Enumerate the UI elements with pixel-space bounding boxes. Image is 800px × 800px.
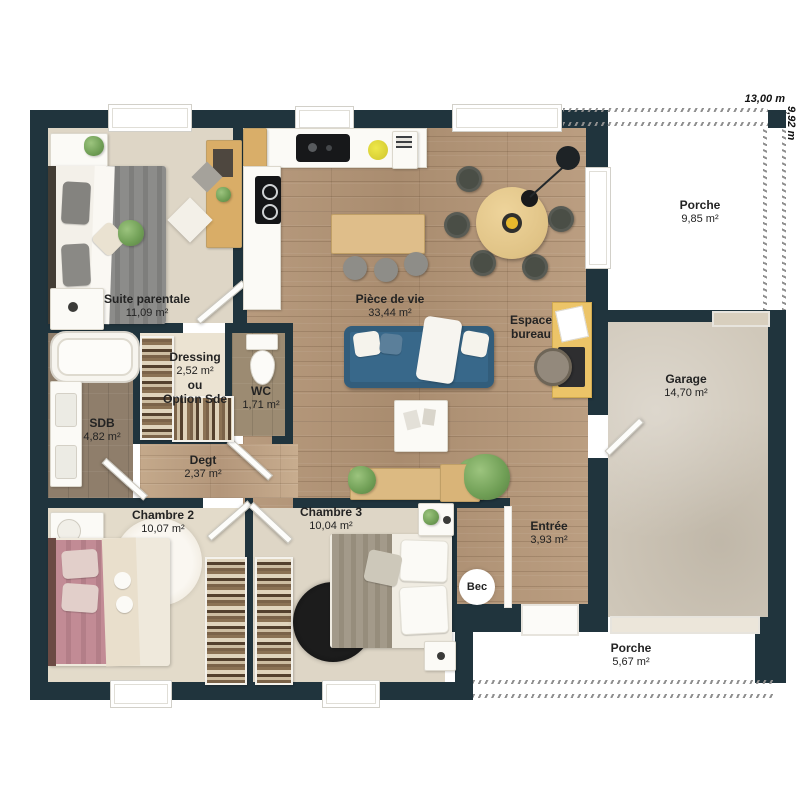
kitchen-drain-icon (326, 145, 332, 151)
label-chambre-2: Chambre 2 10,07 m² (103, 508, 223, 536)
degagement-area: 2,37 m² (153, 467, 253, 481)
suite-window (108, 104, 192, 132)
entree-area: 3,93 m² (489, 533, 609, 547)
suite-bed-plant-icon (118, 220, 144, 246)
degagement-name: Degt (153, 453, 253, 467)
dressing-area: 2,52 m² (143, 364, 247, 378)
porche-haut-area: 9,85 m² (640, 212, 760, 226)
coffee-table-paper-1 (403, 410, 421, 431)
coffee-table (394, 400, 448, 452)
kitchen-cooktop (255, 176, 281, 224)
entree-bottom-wall-left (440, 604, 524, 632)
entree-name: Entrée (489, 519, 609, 533)
kitchen-sink (296, 134, 350, 162)
wc-name: WC (226, 384, 296, 398)
label-wc: WC 1,71 m² (226, 384, 296, 412)
living-bay-window (585, 167, 611, 269)
chambre2-wardrobe (205, 557, 247, 685)
label-chambre-3: Chambre 3 10,04 m² (271, 505, 391, 533)
label-garage: Garage 14,70 m² (626, 372, 746, 400)
suite-dresser (206, 140, 242, 248)
garage-floor (608, 322, 768, 617)
chambre3-pillow-2 (399, 585, 449, 635)
outer-wall-left (30, 110, 48, 700)
chambre3-plant-icon (423, 509, 439, 525)
dash-line-right-1 (763, 128, 767, 310)
chambre3-window (322, 680, 380, 708)
suite-nightstand-item (68, 302, 78, 312)
round-table-chair-1 (456, 166, 482, 192)
toilet-tank (246, 334, 278, 350)
round-table-chair-4 (522, 254, 548, 280)
label-sdb: SDB 4,82 m² (62, 416, 142, 444)
dimension-depth-value: 9,92 m (785, 106, 797, 140)
bec-annotation: Bec (459, 569, 495, 605)
sdb-name: SDB (62, 416, 142, 430)
porche-bas-name: Porche (571, 641, 691, 655)
chambre-3-area: 10,04 m² (271, 519, 391, 533)
suite-parentale-name: Suite parentale (87, 292, 207, 306)
garage-area: 14,70 m² (626, 386, 746, 400)
chambre3-nightstand-bottom (424, 641, 456, 671)
outer-wall-bottom (30, 682, 473, 700)
fruit-icon (506, 217, 518, 229)
entree-plant-icon (464, 454, 510, 500)
fruit-bowl (502, 213, 522, 233)
sofa-pillow-3 (460, 330, 490, 358)
dining-table (331, 214, 425, 254)
chambre2-top-wall (30, 498, 203, 508)
dressing-name: Dressing (143, 350, 247, 364)
sofa-pillow-2 (379, 333, 403, 355)
label-porche-haut: Porche 9,85 m² (640, 198, 760, 226)
burner-2-icon (262, 204, 278, 220)
bathtub (50, 331, 140, 383)
chambre3-bed (330, 534, 452, 648)
label-porche-bas: Porche 5,67 m² (571, 641, 691, 669)
garage-door (610, 616, 760, 634)
chambre3-item-2 (437, 652, 445, 660)
sofa-pillow-1 (352, 330, 381, 357)
round-table-chair-5 (548, 206, 574, 232)
porche-bas-area: 5,67 m² (571, 655, 691, 669)
chambre3-nightstand-top (418, 503, 454, 536)
console-plant-left-icon (348, 466, 376, 494)
chambre-3-name: Chambre 3 (271, 505, 391, 519)
chambre3-pillow-1 (399, 539, 448, 583)
dash-line-top-2 (563, 122, 768, 126)
dash-line-right-2 (782, 128, 786, 310)
pillar-top-right (768, 110, 786, 128)
coffee-table-paper-2 (422, 408, 436, 426)
sdb-area: 4,82 m² (62, 430, 142, 444)
dash-line-bottom-1 (473, 680, 773, 684)
dimension-width-value: 13,00 m (745, 93, 785, 105)
garage-name: Garage (626, 372, 746, 386)
sdb-sink-2 (55, 445, 77, 479)
chambre2-pillow-1 (61, 549, 99, 579)
wc-area: 1,71 m² (226, 398, 296, 412)
chambre2-bed (48, 538, 170, 666)
appliance-grill (396, 136, 412, 148)
chambre-2-name: Chambre 2 (103, 508, 223, 522)
chambre2-pillow-2 (61, 583, 99, 613)
pendant-lamp-icon (556, 146, 580, 170)
chambre3-cushion (363, 549, 403, 587)
kitchen-cabinet (243, 128, 267, 170)
chambre2-headboard (48, 538, 56, 666)
dining-stool-2 (374, 258, 398, 282)
suite-dresser-plant-icon (216, 187, 231, 202)
porche-haut-name: Porche (640, 198, 760, 212)
label-degagement: Degt 2,37 m² (153, 453, 253, 481)
dash-line-bottom-2 (473, 694, 773, 698)
dining-window (452, 104, 562, 132)
chambre3-wardrobe (255, 557, 293, 685)
dimension-width: 13,00 m (690, 93, 785, 105)
dining-stool-3 (404, 252, 428, 276)
wc-bottom-wall (272, 436, 293, 444)
chambre2-pompom-2 (116, 596, 133, 613)
piece-de-vie-name: Pièce de vie (330, 292, 450, 306)
wc-top-wall (225, 323, 293, 333)
garage-doormat (712, 311, 770, 327)
entree-porch-door (521, 604, 579, 636)
bureau-chair (534, 348, 572, 386)
chambre3-item-1 (443, 516, 451, 524)
chambre2-pompom-1 (114, 572, 131, 589)
dimension-depth: 9,92 m (785, 106, 797, 140)
burner-1-icon (262, 184, 278, 200)
chambre-2-area: 10,07 m² (103, 522, 223, 536)
floor-plan: Suite parentale 11,09 m² Pièce de vie 33… (0, 0, 800, 800)
chambre2-window (110, 680, 172, 708)
suite-plant-icon (84, 136, 104, 156)
label-espace-bureau: Espace bureau (499, 313, 563, 341)
round-table-chair-3 (470, 250, 496, 276)
bec-label: Bec (467, 581, 487, 593)
kitchen-appliance (392, 131, 418, 169)
label-piece-de-vie: Pièce de vie 33,44 m² (330, 292, 450, 320)
corner-wall-bottom (455, 632, 473, 698)
dash-line-top-1 (563, 108, 768, 112)
label-entree: Entrée 3,93 m² (489, 519, 609, 547)
dining-stool-1 (343, 256, 367, 280)
piece-de-vie-area: 33,44 m² (330, 306, 450, 320)
round-table-chair-2 (444, 212, 470, 238)
label-suite-parentale: Suite parentale 11,09 m² (87, 292, 207, 320)
kitchen-faucet-icon (308, 143, 317, 152)
espace-bureau-name: Espace bureau (499, 313, 563, 341)
suite-parentale-area: 11,09 m² (87, 306, 207, 320)
suite-pillow-2 (61, 243, 91, 286)
suite-pillow-1 (61, 181, 91, 224)
kitchen-flowers (368, 140, 388, 160)
